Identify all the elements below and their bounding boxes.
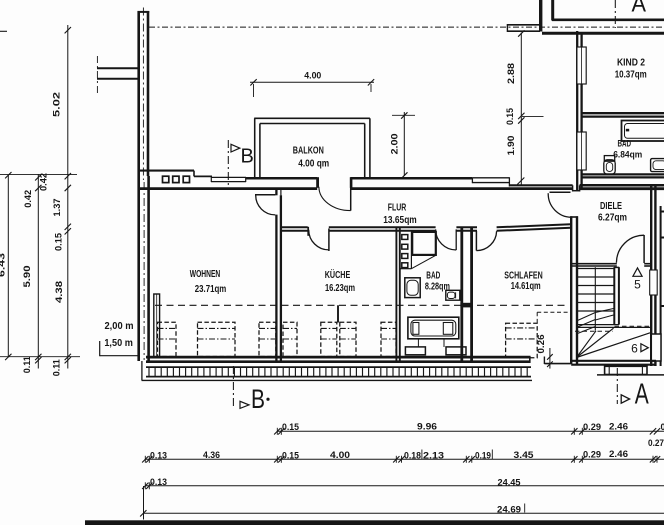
svg-text:0: 0 <box>661 421 664 432</box>
svg-text:10.37qm: 10.37qm <box>615 70 647 81</box>
svg-text:5.90: 5.90 <box>21 266 32 288</box>
svg-text:4.36: 4.36 <box>203 449 220 460</box>
svg-text:4.38: 4.38 <box>53 281 64 303</box>
svg-text:0.15: 0.15 <box>282 421 299 432</box>
svg-text:24.69: 24.69 <box>497 503 521 514</box>
svg-text:6: 6 <box>631 342 638 356</box>
svg-text:B: B <box>251 384 265 414</box>
svg-text:0.29: 0.29 <box>583 421 601 432</box>
svg-text:1.90: 1.90 <box>505 136 516 156</box>
svg-text:16.23qm: 16.23qm <box>325 283 355 294</box>
svg-text:DIELE: DIELE <box>600 201 622 212</box>
svg-text:4.00: 4.00 <box>330 449 350 460</box>
svg-text:23.71qm: 23.71qm <box>195 284 227 295</box>
svg-text:13.65qm: 13.65qm <box>383 215 417 226</box>
svg-text:6.84qm: 6.84qm <box>613 148 642 159</box>
svg-text:0.26: 0.26 <box>535 335 546 354</box>
svg-text:WOHNEN: WOHNEN <box>190 269 221 280</box>
svg-text:5: 5 <box>634 278 641 292</box>
svg-text:2,00 m: 2,00 m <box>105 321 134 332</box>
svg-text:0.13: 0.13 <box>150 449 167 460</box>
svg-text:2.13: 2.13 <box>423 449 444 460</box>
svg-text:6.43: 6.43 <box>0 253 7 277</box>
svg-text:24.45: 24.45 <box>498 476 521 487</box>
svg-text:A: A <box>635 378 649 410</box>
svg-text:FLUR: FLUR <box>388 203 407 214</box>
svg-text:9.96: 9.96 <box>417 420 437 431</box>
svg-text:BALKON: BALKON <box>293 145 324 156</box>
svg-text:0.42: 0.42 <box>22 190 33 208</box>
svg-text:KÜCHE: KÜCHE <box>325 270 351 281</box>
svg-text:0.11: 0.11 <box>51 359 62 376</box>
svg-text:0.13: 0.13 <box>150 476 167 487</box>
svg-text:3.45: 3.45 <box>514 449 534 460</box>
svg-text:0.15: 0.15 <box>282 449 299 460</box>
svg-text:2.46: 2.46 <box>609 448 628 459</box>
svg-text:0.29: 0.29 <box>583 449 601 460</box>
svg-text:1.37: 1.37 <box>51 199 62 217</box>
svg-text:B: B <box>241 145 254 167</box>
svg-text:0.18: 0.18 <box>404 449 421 460</box>
svg-text:0.15: 0.15 <box>504 108 515 125</box>
svg-text:0.42: 0.42 <box>38 173 49 191</box>
svg-text:0.19: 0.19 <box>475 449 491 460</box>
svg-text:14.61qm: 14.61qm <box>511 281 541 292</box>
svg-text:BAD: BAD <box>426 270 440 281</box>
svg-text:A: A <box>632 0 647 18</box>
svg-text:1,50 m: 1,50 m <box>104 338 133 349</box>
svg-text:5.02: 5.02 <box>51 92 62 117</box>
svg-text:2.46: 2.46 <box>609 420 628 431</box>
svg-text:6.27qm: 6.27qm <box>598 213 627 224</box>
svg-text:BAD: BAD <box>618 138 632 148</box>
svg-text:4.00 qm: 4.00 qm <box>298 158 329 169</box>
svg-text:2.88: 2.88 <box>505 63 516 84</box>
svg-text:0.11: 0.11 <box>21 356 32 373</box>
svg-text:0.15: 0.15 <box>53 233 64 251</box>
svg-text:4.00: 4.00 <box>304 70 321 81</box>
svg-text:0.27: 0.27 <box>648 437 664 448</box>
svg-text:2.00: 2.00 <box>388 134 399 155</box>
svg-text:KIND 2: KIND 2 <box>617 58 645 69</box>
